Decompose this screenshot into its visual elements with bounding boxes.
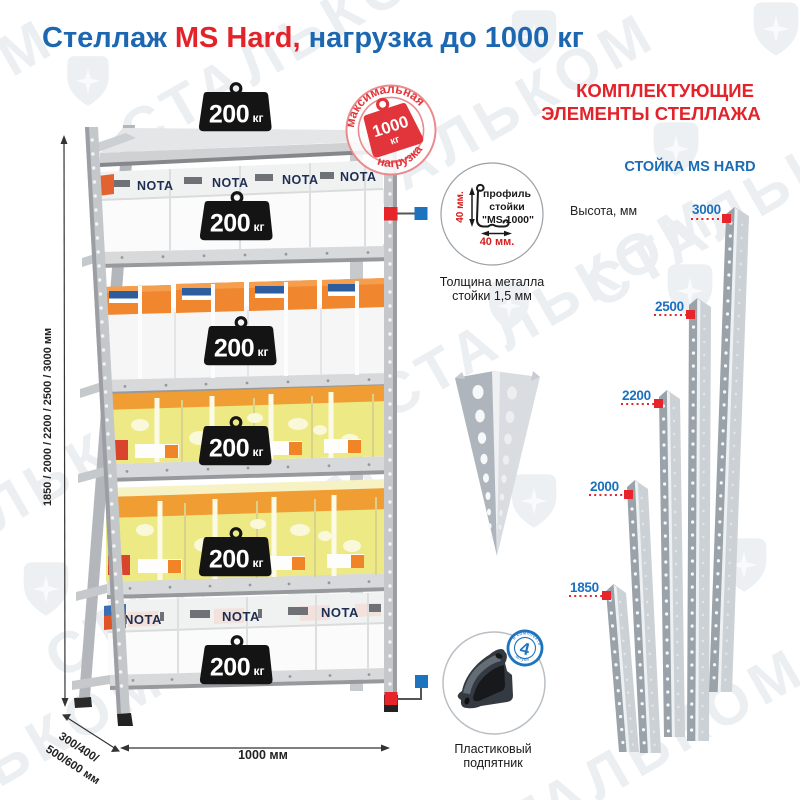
svg-text:200: 200 bbox=[210, 210, 250, 238]
svg-text:40 мм.: 40 мм. bbox=[455, 191, 466, 223]
svg-text:стойки 1,5 мм: стойки 1,5 мм bbox=[452, 289, 532, 303]
svg-text:1850: 1850 bbox=[570, 580, 599, 595]
svg-text:NOTA: NOTA bbox=[137, 179, 174, 193]
svg-text:200: 200 bbox=[209, 101, 249, 129]
svg-text:200: 200 bbox=[214, 335, 254, 363]
svg-text:NOTA: NOTA bbox=[321, 605, 359, 620]
svg-text:40 мм.: 40 мм. bbox=[480, 236, 515, 248]
svg-text:2000: 2000 bbox=[590, 479, 619, 494]
svg-text:1000 мм: 1000 мм bbox=[238, 748, 288, 762]
svg-text:NOTA: NOTA bbox=[282, 173, 319, 187]
svg-text:кг: кг bbox=[254, 664, 265, 678]
svg-text:NOTA: NOTA bbox=[124, 612, 162, 627]
svg-text:профиль: профиль bbox=[483, 188, 531, 200]
svg-text:стойки: стойки bbox=[489, 201, 524, 213]
svg-text:ЭЛЕМЕНТЫ СТЕЛЛАЖА: ЭЛЕМЕНТЫ СТЕЛЛАЖА bbox=[541, 103, 760, 124]
svg-text:NOTA: NOTA bbox=[340, 170, 377, 184]
svg-text:2200: 2200 bbox=[622, 388, 651, 403]
svg-text:2500: 2500 bbox=[655, 299, 684, 314]
svg-text:Стеллаж MS Hard, нагрузка до 1: Стеллаж MS Hard, нагрузка до 1000 кг bbox=[42, 22, 584, 54]
svg-text:"MS 1000": "MS 1000" bbox=[482, 214, 534, 226]
svg-text:кг: кг bbox=[253, 556, 264, 570]
svg-text:Толщина металла: Толщина металла bbox=[440, 275, 544, 289]
svg-text:КОМПЛЕКТУЮЩИЕ: КОМПЛЕКТУЮЩИЕ bbox=[576, 80, 754, 101]
svg-text:1850 / 2000 / 2200 / 2500 / 30: 1850 / 2000 / 2200 / 2500 / 3000 мм bbox=[42, 328, 54, 506]
svg-text:200: 200 bbox=[210, 654, 250, 682]
svg-text:200: 200 bbox=[209, 435, 249, 463]
svg-text:кг: кг bbox=[253, 111, 264, 125]
svg-text:кг: кг bbox=[254, 220, 265, 234]
svg-text:Пластиковый: Пластиковый bbox=[454, 742, 531, 756]
svg-text:200: 200 bbox=[209, 546, 249, 574]
svg-text:подпятник: подпятник bbox=[463, 756, 523, 770]
svg-text:кг: кг bbox=[253, 445, 264, 459]
svg-text:Высота, мм: Высота, мм bbox=[570, 204, 637, 218]
svg-text:СТОЙКА MS HARD: СТОЙКА MS HARD bbox=[624, 157, 755, 175]
svg-text:3000: 3000 bbox=[692, 202, 721, 217]
svg-text:кг: кг bbox=[258, 345, 269, 359]
svg-text:NOTA: NOTA bbox=[222, 609, 260, 624]
svg-text:NOTA: NOTA bbox=[212, 176, 249, 190]
